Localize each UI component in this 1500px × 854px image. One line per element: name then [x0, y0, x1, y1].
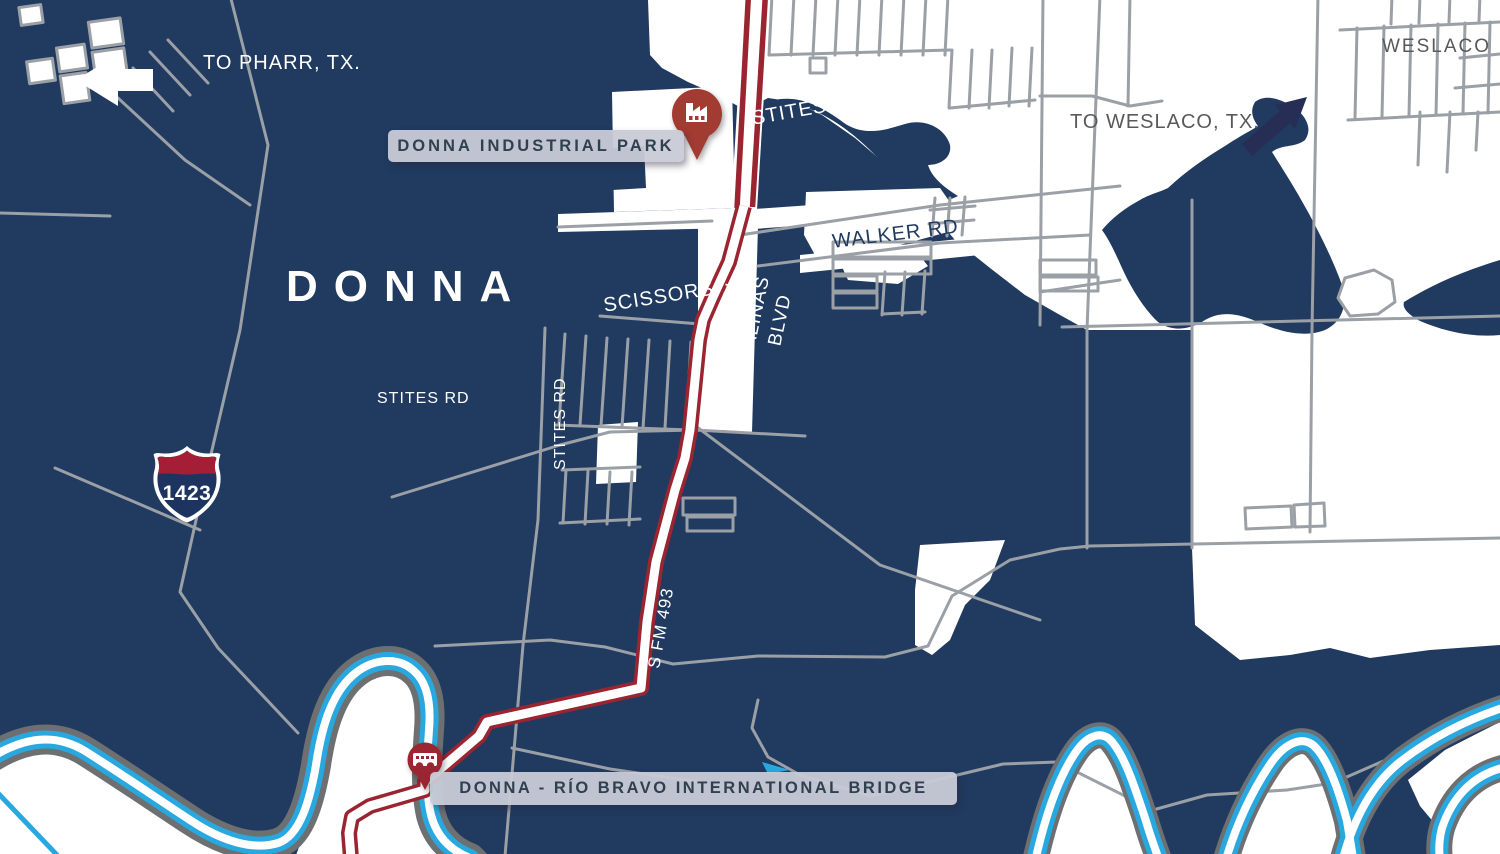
city-label-donna: DONNA	[286, 262, 527, 312]
city-label-weslaco: WESLACO	[1382, 36, 1491, 58]
road-label-stites-vertical: STITES RD	[552, 377, 570, 470]
industrial-park-pill: DONNA INDUSTRIAL PARK	[388, 130, 684, 162]
map-canvas: 1423	[0, 0, 1500, 854]
bridge-pill: DONNA - RÍO BRAVO INTERNATIONAL BRIDGE	[430, 772, 957, 805]
industrial-park-pill-text: DONNA INDUSTRIAL PARK	[397, 137, 674, 156]
shield-number: 1423	[163, 482, 212, 505]
bridge-pill-text: DONNA - RÍO BRAVO INTERNATIONAL BRIDGE	[459, 779, 927, 798]
road-label-stites-mid: STITES RD	[377, 390, 470, 408]
direction-label-pharr: TO PHARR, TX.	[203, 52, 361, 75]
direction-label-weslaco: TO WESLACO, TX.	[1070, 111, 1260, 134]
donna-map: 1423 DONNA TO PHARR, TX. TO WESLACO, TX.…	[0, 0, 1500, 854]
